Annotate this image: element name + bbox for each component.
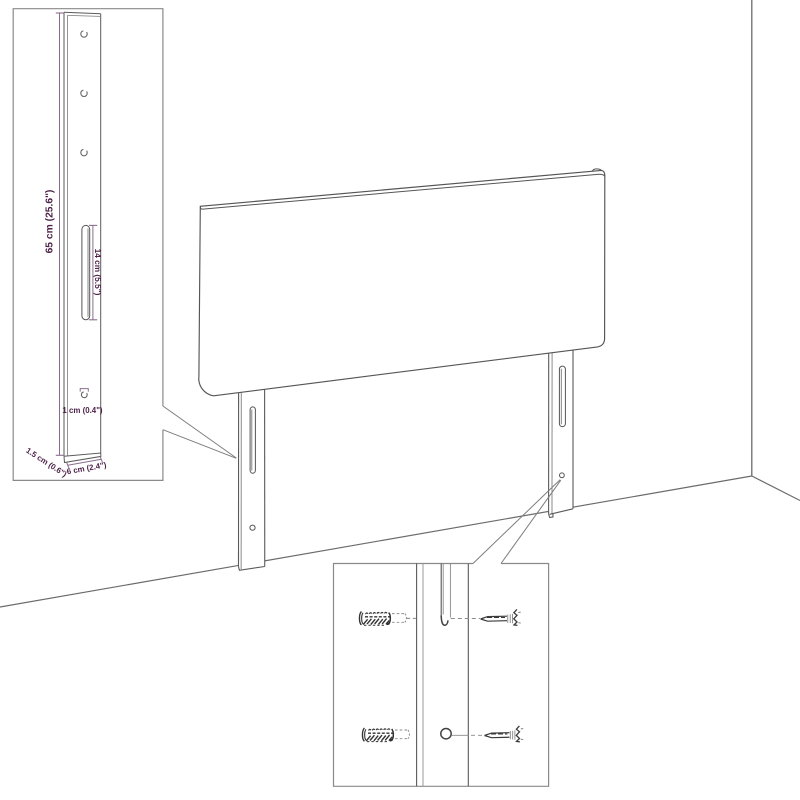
svg-text:14 cm (5.5"): 14 cm (5.5"): [93, 249, 103, 296]
svg-text:65 cm (25.6"): 65 cm (25.6"): [45, 190, 56, 254]
svg-text:1 cm (0.4"): 1 cm (0.4"): [62, 406, 103, 415]
